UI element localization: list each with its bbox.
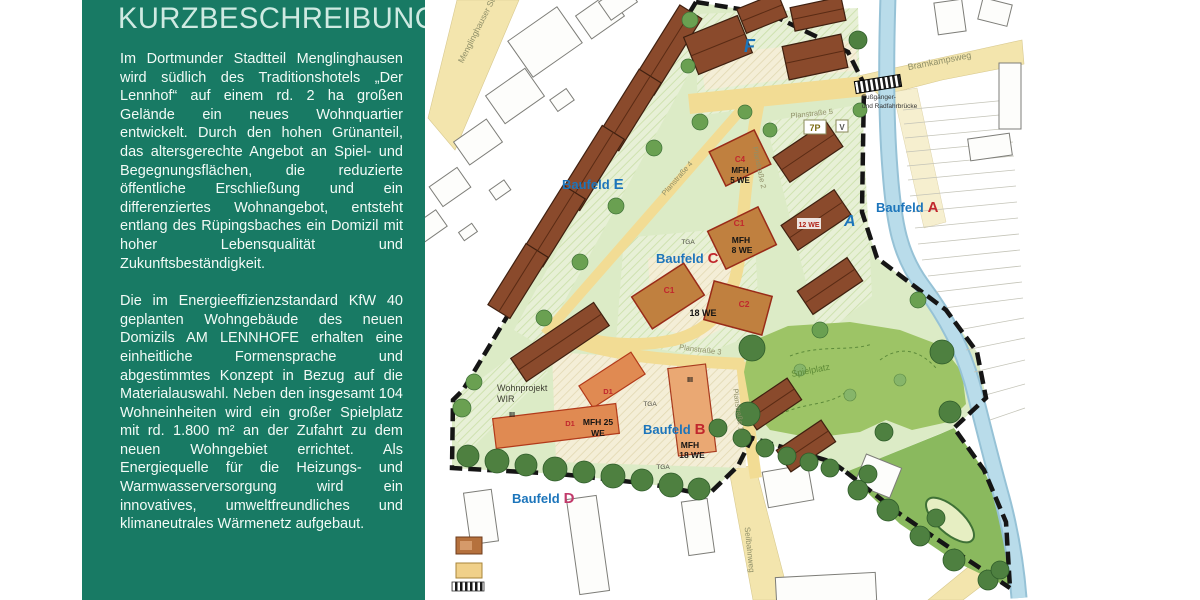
label-b-type: MFH [681,440,699,450]
parking-markers: 7P V [804,120,848,134]
parking-label: 7P [809,123,820,133]
label-c1-type: MFH [732,235,750,245]
panel-paragraph-1: Im Dortmunder Stadtteil Menglinghausen w… [120,50,403,273]
label-a-units: 12 WE [798,222,819,229]
label-tga-1: TGA [681,239,695,246]
label-c4-type: MFH [731,166,749,175]
flyer-page: KURZBESCHREIBUNG Im Dortmunder Stadtteil… [0,0,1200,600]
label-b-floors: III [687,377,693,384]
label-mfh25-line2: WE [591,428,605,438]
label-bridge-2: und Radfahrbrücke [862,103,918,110]
visitor-label: V [839,123,845,132]
label-c2-code: C2 [739,299,750,309]
label-tga-2: TGA [643,401,657,408]
label-c1-code: C1 [734,218,745,228]
label-mfh25-floors: III [509,412,515,419]
label-baufeld-e: BaufeldE [562,176,624,193]
label-d1-code: D1 [565,419,575,428]
label-bridge-1: Fußgänger- [862,94,896,101]
label-d1-diag: D1 [603,387,613,396]
label-c12-units: 18 WE [689,308,716,318]
label-b-units: 18 WE [679,450,705,460]
site-plan-map: 7P V Menglinghauser Str. Bramkampsweg Pl… [425,0,1200,600]
label-baufeld-a: BaufeldA [876,199,939,216]
description-panel: KURZBESCHREIBUNG Im Dortmunder Stadtteil… [82,0,425,600]
label-c1-units: 8 WE [732,245,753,255]
label-baufeld-c: BaufeldC [656,250,719,267]
label-baufeld-b: BaufeldB [643,421,706,438]
label-baufeld-d: BaufeldD [512,490,575,507]
label-mfh25-line1: MFH 25 [583,417,614,427]
label-wohnprojekt-1: Wohnprojekt [497,383,548,393]
edge-buildings [452,537,484,591]
label-wohnprojekt-2: WIR [497,394,515,404]
panel-paragraph-2: Die im Energieeffizienzstandard KfW 40 g… [120,292,403,534]
marker-baufeld-a: A [843,213,856,230]
label-c4-code: C4 [735,155,746,164]
label-c1b-code: C1 [664,285,675,295]
label-tga-3: TGA [656,464,670,471]
label-c4-units: 5 WE [730,176,750,185]
panel-title: KURZBESCHREIBUNG [118,2,394,36]
marker-baufeld-f: F [744,36,756,56]
